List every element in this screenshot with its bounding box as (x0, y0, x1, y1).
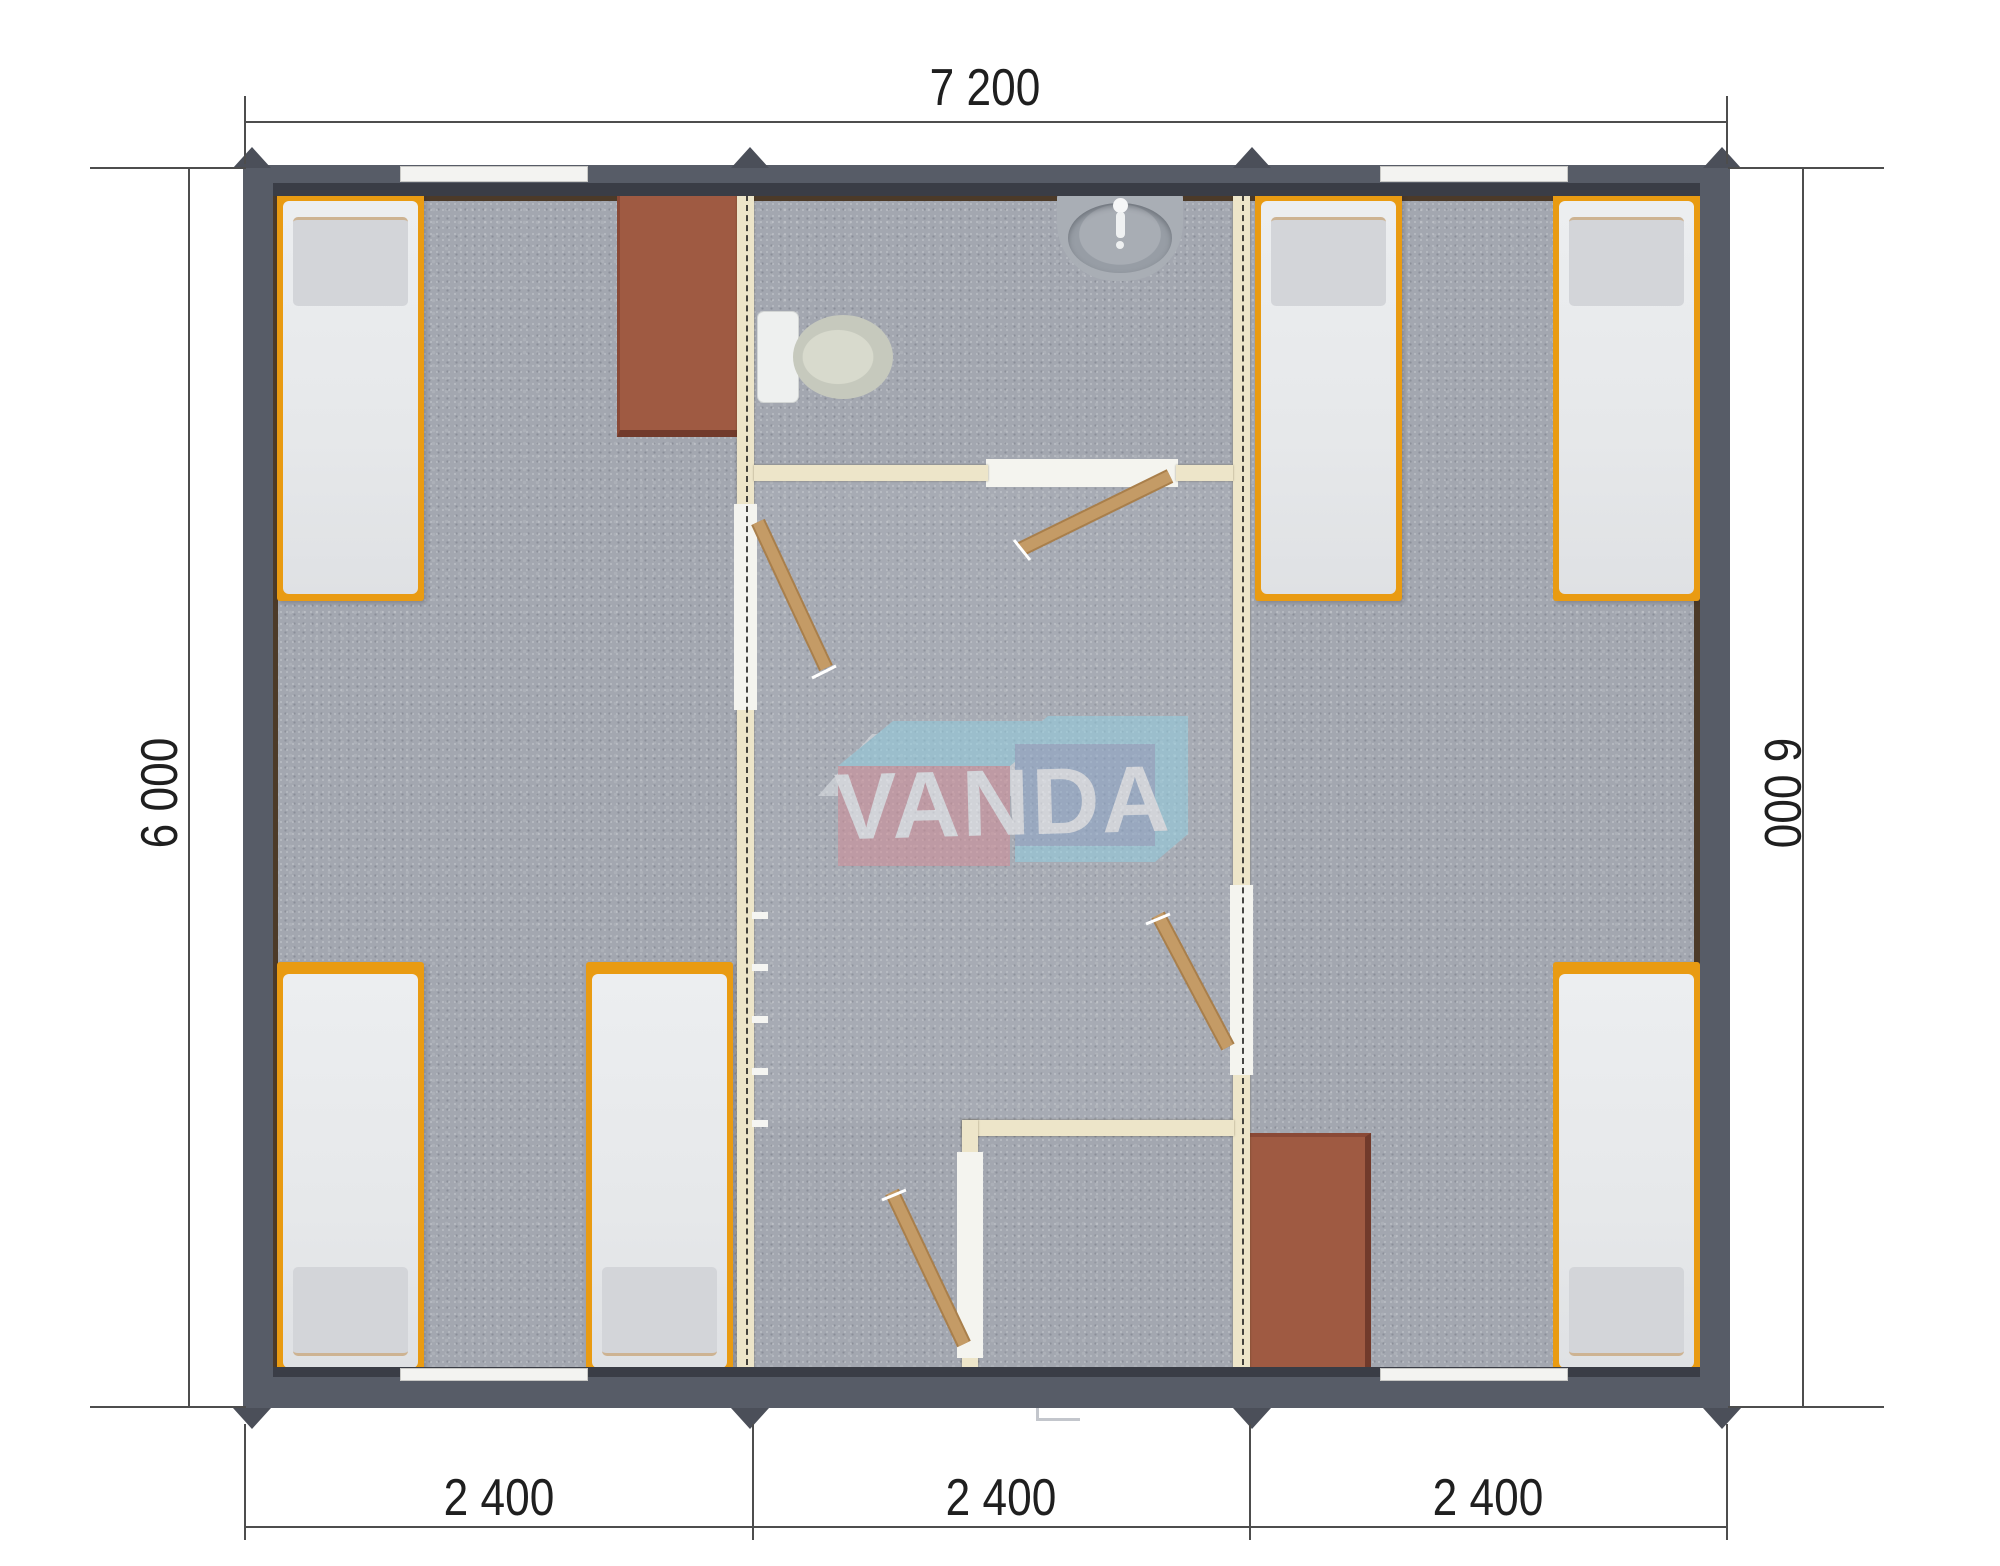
dimension-tick (244, 96, 246, 164)
door-jamb-bathroom (986, 459, 1178, 487)
bed-right-room-top-right (1553, 189, 1700, 601)
bathroom-wall-right-segment (1176, 465, 1233, 481)
logo-text: VANDA (833, 746, 1173, 860)
bathroom-wall-left-segment (754, 465, 988, 481)
dimension-label-right: 6 000 (1752, 725, 1812, 861)
window-top-right (1380, 166, 1568, 182)
lifting-lug-icon (1233, 1408, 1271, 1429)
bed-right-room-top-left (1255, 189, 1402, 601)
floor-plan: VANDA (0, 0, 2000, 1566)
sink-drain (1116, 241, 1124, 249)
dimension-tick (90, 1406, 246, 1408)
mattress (283, 201, 418, 594)
vestibule-wall-left (962, 1120, 978, 1375)
wall-hook (752, 964, 768, 971)
lifting-lug-icon (731, 1408, 769, 1429)
window-bottom-left (400, 1368, 588, 1381)
mattress (1559, 201, 1694, 594)
lifting-lug-icon (1703, 1408, 1741, 1429)
partition-centerline (746, 195, 748, 1375)
dimension-tick (1726, 1424, 1728, 1540)
mattress (1261, 201, 1396, 594)
entry-step (1036, 1408, 1080, 1421)
exterior-wall-right (1700, 165, 1730, 1408)
dimension-tick (1728, 167, 1884, 169)
dimension-tick (1249, 1424, 1251, 1540)
wall-hook (752, 1068, 768, 1075)
table-right-room (1250, 1133, 1371, 1375)
pillow (1569, 1267, 1684, 1356)
wall-hook (752, 1120, 768, 1127)
window-top-left (400, 166, 588, 182)
partition-centerline (1242, 195, 1244, 1375)
dimension-label-left: 6 000 (130, 725, 190, 861)
pillow (602, 1267, 717, 1356)
table-left-room (617, 195, 738, 437)
wall-hook (752, 912, 768, 919)
partition-right (1233, 195, 1250, 1375)
bed-left-room-top (277, 189, 424, 601)
mattress (592, 974, 727, 1368)
faucet-lever (1116, 212, 1125, 238)
door-jamb-vestibule (957, 1152, 983, 1358)
dimension-tick (244, 1424, 246, 1540)
dimension-label-module-2: 2 400 (916, 1468, 1086, 1528)
dimension-line-top (245, 121, 1727, 123)
bed-right-room-bottom (1553, 962, 1700, 1375)
lifting-lug-icon (731, 147, 769, 168)
dimension-tick (1728, 1406, 1884, 1408)
dimension-label-module-1: 2 400 (414, 1468, 584, 1528)
pillow (1569, 217, 1684, 306)
wall-hook (752, 1016, 768, 1023)
dimension-tick (1726, 96, 1728, 164)
dimension-label-top: 7 200 (900, 58, 1070, 118)
mattress (1559, 974, 1694, 1368)
faucet-icon (1113, 198, 1128, 213)
wall-top-inner-lip (272, 183, 1700, 196)
mattress (283, 974, 418, 1368)
vestibule-wall-top (962, 1120, 1234, 1136)
partition-left (737, 195, 754, 1375)
dimension-tick (90, 167, 246, 169)
bed-left-room-bottom-left (277, 962, 424, 1375)
lifting-lug-icon (233, 1408, 271, 1429)
lifting-lug-icon (1703, 147, 1741, 168)
vanda-watermark-logo: VANDA (810, 690, 1190, 870)
exterior-wall-left (243, 165, 273, 1408)
pillow (293, 1267, 408, 1356)
pillow (1271, 217, 1386, 306)
dimension-label-module-3: 2 400 (1403, 1468, 1573, 1528)
bed-left-room-bottom-right (586, 962, 733, 1375)
dimension-tick (752, 1424, 754, 1540)
lifting-lug-icon (233, 147, 271, 168)
lifting-lug-icon (1233, 147, 1271, 168)
pillow (293, 217, 408, 306)
window-bottom-right (1380, 1368, 1568, 1381)
toilet-bowl (793, 315, 893, 399)
